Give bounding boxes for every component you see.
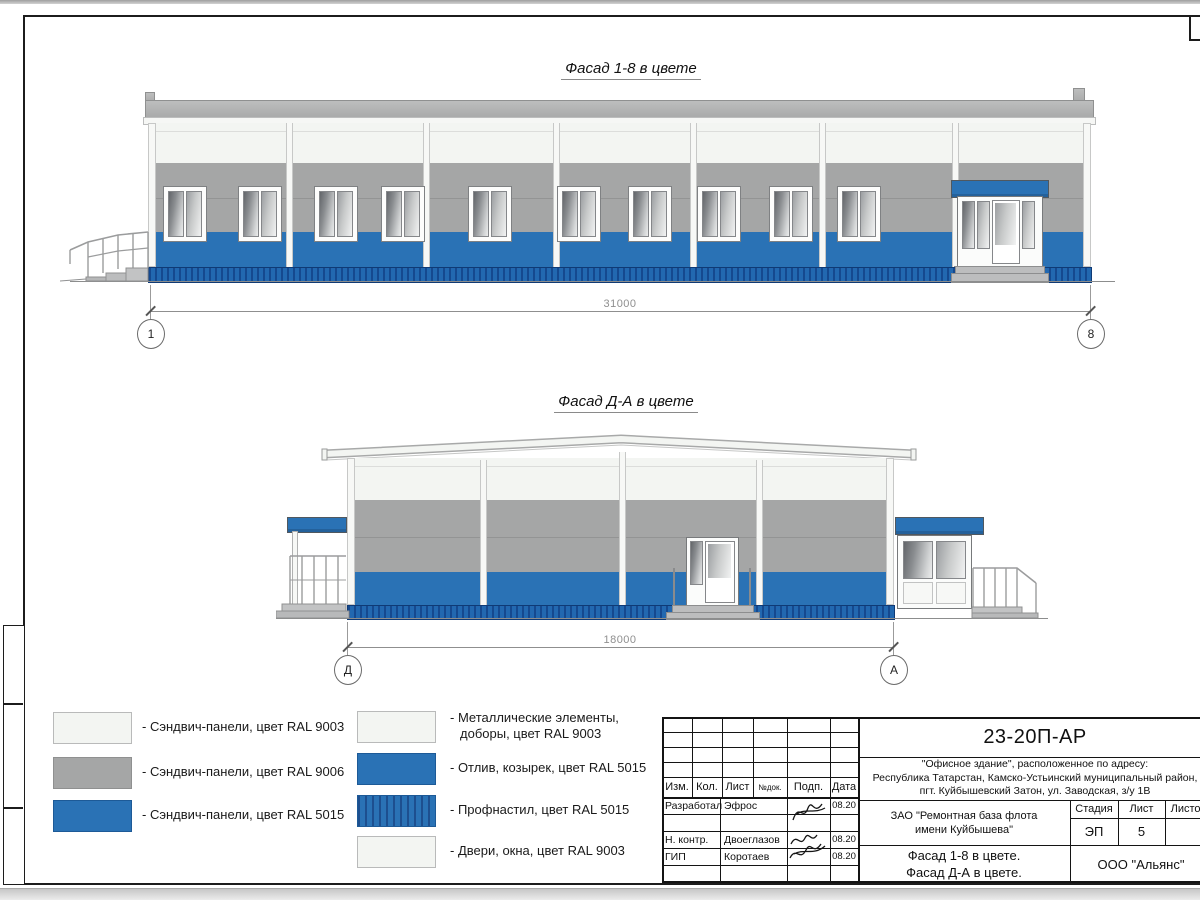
signature	[787, 830, 829, 866]
dimension-line	[150, 311, 1090, 312]
sheet-label: Лист	[1118, 800, 1165, 818]
col-podp: Подп.	[787, 777, 830, 797]
frame-corner-box	[1189, 15, 1200, 41]
frame-margin-divider	[3, 703, 23, 705]
window	[837, 186, 881, 242]
axis-bubble-a: А	[880, 655, 908, 685]
vestibule-glazing	[897, 535, 972, 609]
row-date: 08.20	[830, 831, 858, 848]
axis-bubble-8: 8	[1077, 319, 1105, 349]
row-name: Коротаев	[720, 848, 791, 865]
col-izm: Изм.	[662, 777, 692, 797]
window	[163, 186, 207, 242]
facade2-title: Фасад Д-А в цвете	[426, 393, 826, 413]
pilaster	[619, 452, 626, 605]
legend-label: - Профнастил, цвет RAL 5015	[450, 802, 680, 818]
sheet-title-line: Фасад Д-А в цвете.	[906, 864, 1022, 881]
legend-swatch-ral9003	[53, 712, 132, 744]
facade1-title: Фасад 1-8 в цвете	[431, 60, 831, 80]
legend-swatch-otliv	[357, 753, 436, 785]
legend-swatch-metal	[357, 711, 436, 743]
legend-label: - Сэндвич-панели, цвет RAL 9003	[142, 719, 372, 735]
row-date: 08.20	[830, 848, 858, 865]
page-edge-top	[0, 0, 1200, 4]
window	[628, 186, 672, 242]
legend-label: - Сэндвич-панели, цвет RAL 5015	[142, 807, 372, 823]
extension-line	[1090, 285, 1091, 323]
signature	[789, 796, 829, 828]
dimension-value: 18000	[520, 634, 720, 646]
window	[381, 186, 425, 242]
ground-line	[276, 618, 1048, 619]
row-role: ГИП	[662, 848, 723, 865]
address-line: Республика Татарстан, Камско-Устьинский …	[873, 772, 1198, 786]
axis-bubble-1: 1	[137, 319, 165, 349]
legend-label: - Двери, окна, цвет RAL 9003	[450, 843, 680, 859]
extension-line	[150, 285, 151, 323]
address-line: пгт. Куйбышевский Затон, ул. Заводская, …	[920, 785, 1151, 799]
porch-railing-steps	[276, 552, 352, 618]
col-data: Дата	[830, 777, 858, 797]
col-ndok: №док.	[753, 777, 787, 797]
extension-line	[347, 622, 348, 658]
pilaster	[690, 123, 697, 267]
door-rail-post	[673, 568, 675, 606]
legend-swatch-doors	[357, 836, 436, 868]
dimension-value: 31000	[520, 298, 720, 310]
row-date: 08.20	[830, 797, 858, 814]
company: ООО "Альянс"	[1070, 845, 1200, 883]
sheet-value: 5	[1118, 818, 1165, 845]
sheet-title-line: Фасад 1-8 в цвете.	[908, 847, 1021, 864]
window	[557, 186, 601, 242]
project-address: "Офисное здание", расположенное по адрес…	[858, 757, 1200, 800]
frame-bottom	[23, 883, 1200, 885]
drawing-sheet: Фасад 1-8 в цвете	[0, 0, 1200, 900]
corner-pilaster	[886, 458, 894, 605]
pilaster	[480, 460, 487, 605]
extension-line	[893, 622, 894, 658]
col-kol: Кол.	[692, 777, 722, 797]
stage-label: Стадия	[1070, 800, 1118, 818]
vestibule-canopy	[895, 517, 984, 535]
ground-line	[70, 281, 1115, 282]
corner-pilaster	[1083, 123, 1091, 267]
frame-margin-boxes	[3, 625, 25, 885]
stairs-railing-left	[60, 226, 152, 282]
row-role: Н. контр.	[662, 831, 723, 848]
legend-label: - Отлив, козырек, цвет RAL 5015	[450, 760, 680, 776]
entrance-glazing	[957, 196, 1043, 268]
legend-swatch-profnastil	[357, 795, 436, 827]
client: ЗАО "Ремонтная база флота имени Куйбышев…	[858, 800, 1070, 845]
legend-label: - Сэндвич-панели, цвет RAL 9006	[142, 764, 372, 780]
legend-label: - Металлические элементы, доборы, цвет R…	[450, 710, 646, 742]
pilaster	[756, 460, 763, 605]
row-name: Двоеглазов	[720, 831, 791, 848]
address-line: "Офисное здание", расположенное по адрес…	[922, 758, 1148, 772]
pilaster	[819, 123, 826, 267]
window	[769, 186, 813, 242]
frame-top	[23, 15, 1200, 17]
legend-swatch-ral9006	[53, 757, 132, 789]
stage-value: ЭП	[1070, 818, 1118, 845]
window	[697, 186, 741, 242]
pilaster	[286, 123, 293, 267]
frame-margin-divider	[3, 807, 23, 809]
page-edge-bottom	[0, 888, 1200, 900]
vestibule-railing-steps	[970, 563, 1044, 619]
col-list: Лист	[722, 777, 753, 797]
window	[314, 186, 358, 242]
window	[468, 186, 512, 242]
sheet-title: Фасад 1-8 в цвете. Фасад Д-А в цвете.	[858, 845, 1070, 883]
legend-swatch-ral5015	[53, 800, 132, 832]
row-name: Эфрос	[720, 797, 791, 814]
row-role: Разработал	[662, 797, 723, 814]
door	[686, 537, 739, 607]
doc-code: 23-20П-АР	[858, 717, 1200, 757]
door-rail-post	[749, 568, 751, 606]
axis-bubble-d: Д	[334, 655, 362, 685]
window	[238, 186, 282, 242]
dimension-line	[347, 647, 893, 648]
sheets-label: Листов	[1165, 800, 1200, 818]
